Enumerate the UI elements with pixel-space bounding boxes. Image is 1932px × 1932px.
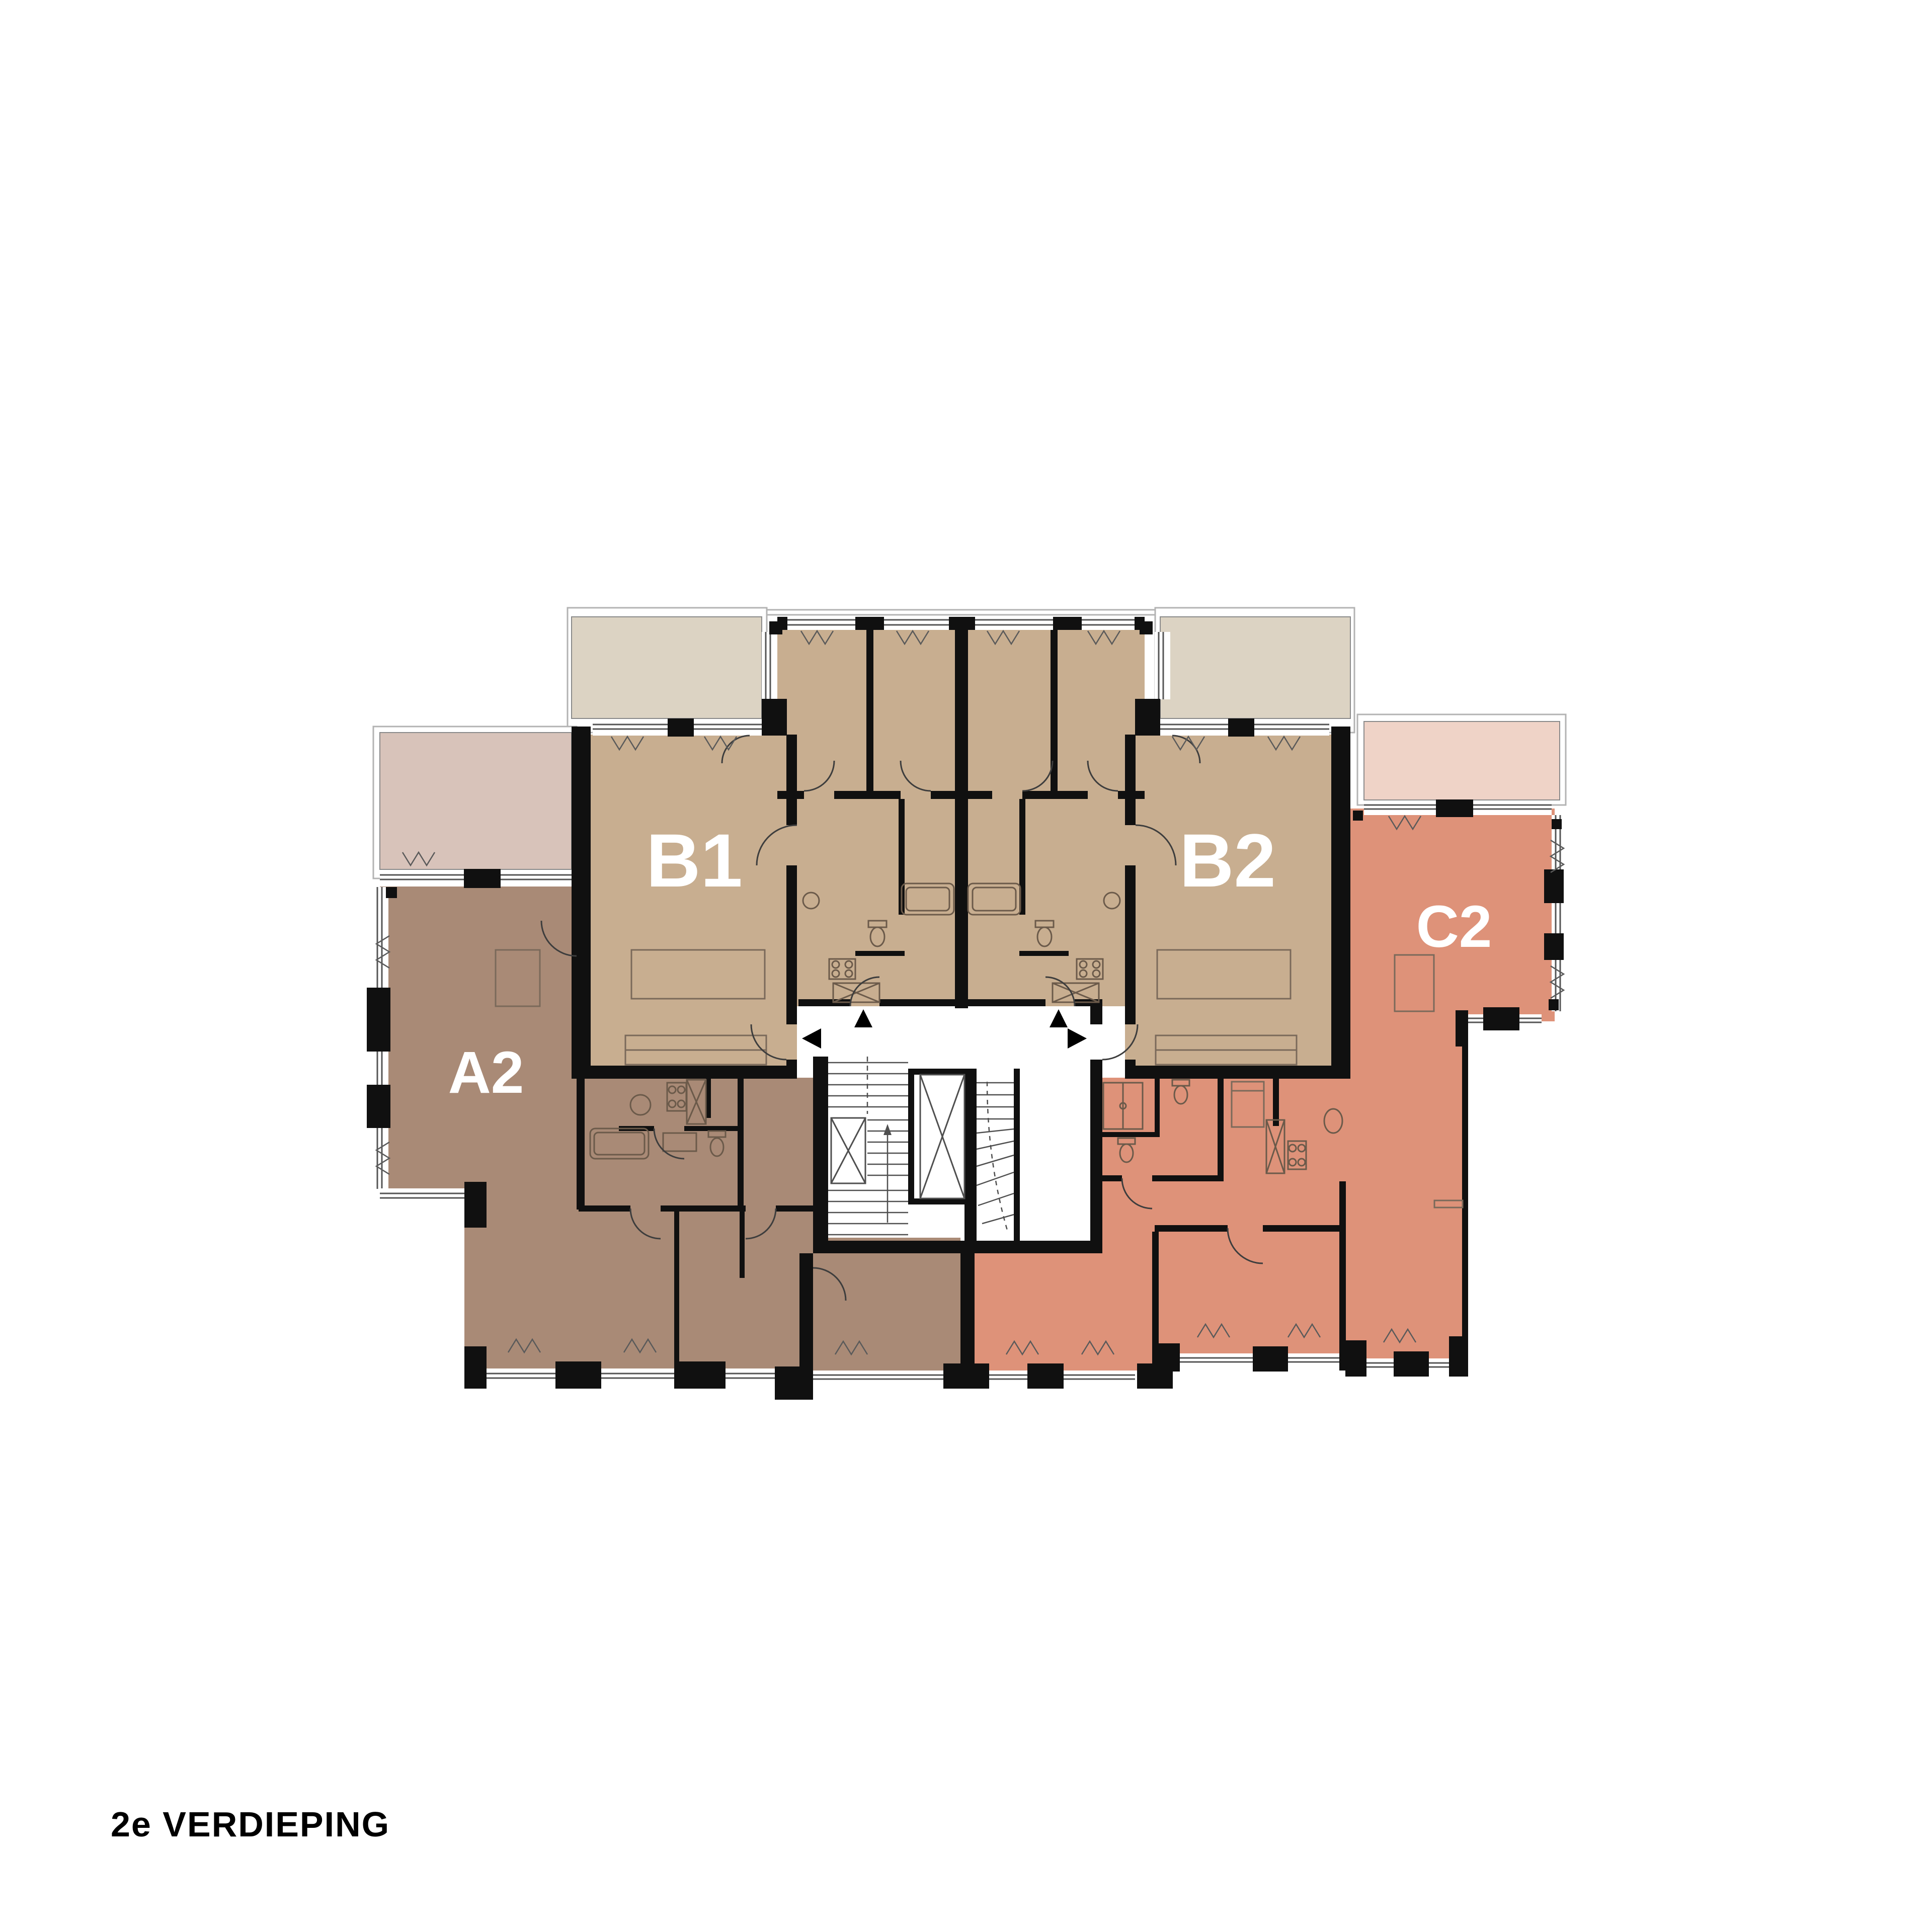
winder-staircase: [977, 1082, 1014, 1234]
party-wall: [955, 630, 968, 1008]
unit-label-a2: A2: [448, 1039, 524, 1106]
stair-direction-arrow: [883, 1124, 892, 1135]
c2-bedrooms-fill: [975, 1241, 1468, 1371]
b2-living-fill: [1125, 735, 1331, 1078]
core: [828, 1057, 1014, 1235]
floor-plan-page: A2 B1 B2 C2 2e VERDIEPING: [0, 0, 1932, 1932]
entrance-arrow-up-b1-icon: [854, 1009, 872, 1027]
a2-bedrooms-fill: [464, 1078, 813, 1369]
unit-label-b1: B1: [646, 818, 743, 903]
floor-title: 2e VERDIEPING: [111, 1804, 390, 1844]
staircase: [828, 1057, 908, 1235]
entrance-arrows: [802, 1009, 1087, 1049]
terrace-a2: [380, 733, 572, 869]
terrace-b1: [572, 617, 762, 718]
floor-plan-drawing: A2 B1 B2 C2: [0, 0, 1932, 1932]
unit-label-c2: C2: [1416, 894, 1492, 960]
b1-living-fill: [591, 735, 797, 1078]
entrance-arrow-left-a2-icon: [802, 1028, 821, 1049]
entrance-arrow-up-b2-icon: [1050, 1009, 1068, 1027]
unit-label-b2: B2: [1179, 818, 1276, 903]
entrance-arrow-right-c2-icon: [1068, 1028, 1087, 1049]
elevator: [920, 1075, 964, 1198]
terrace-b2: [1160, 617, 1350, 718]
terrace-c2: [1364, 721, 1560, 800]
c2-living-lower-fill: [1331, 1021, 1468, 1078]
